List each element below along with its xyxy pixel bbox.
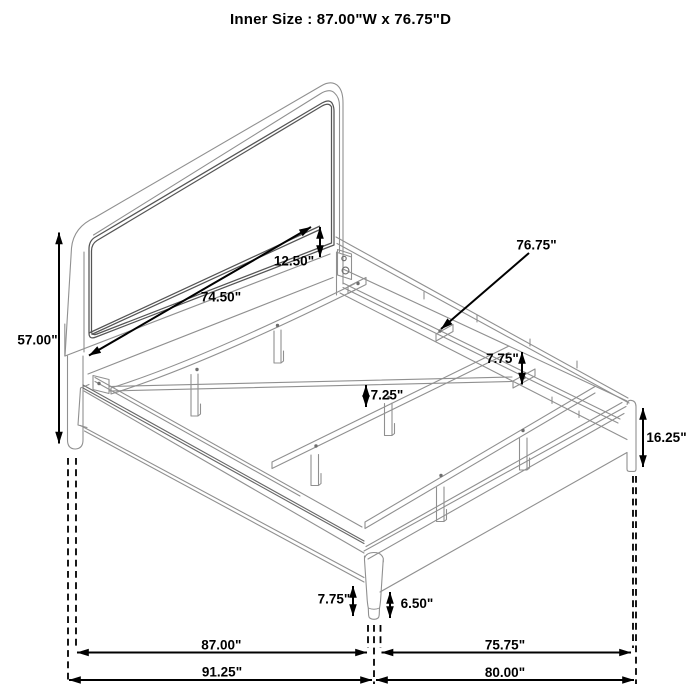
svg-text:7.75": 7.75" <box>318 592 351 607</box>
svg-text:80.00": 80.00" <box>485 665 525 680</box>
svg-text:87.00": 87.00" <box>201 637 241 652</box>
svg-text:12.50": 12.50" <box>274 254 314 269</box>
svg-text:76.75": 76.75" <box>516 238 556 253</box>
svg-text:91.25": 91.25" <box>202 665 242 680</box>
svg-text:6.50": 6.50" <box>401 596 434 611</box>
svg-text:57.00": 57.00" <box>17 333 57 348</box>
svg-text:75.75": 75.75" <box>485 638 525 653</box>
svg-text:16.25": 16.25" <box>646 430 686 445</box>
svg-text:7.75": 7.75" <box>486 351 519 366</box>
svg-text:Inner Size : 87.00"W x 76.75"D: Inner Size : 87.00"W x 76.75"D <box>230 11 451 28</box>
svg-text:7.25": 7.25" <box>371 388 404 403</box>
svg-text:74.50": 74.50" <box>201 290 241 305</box>
